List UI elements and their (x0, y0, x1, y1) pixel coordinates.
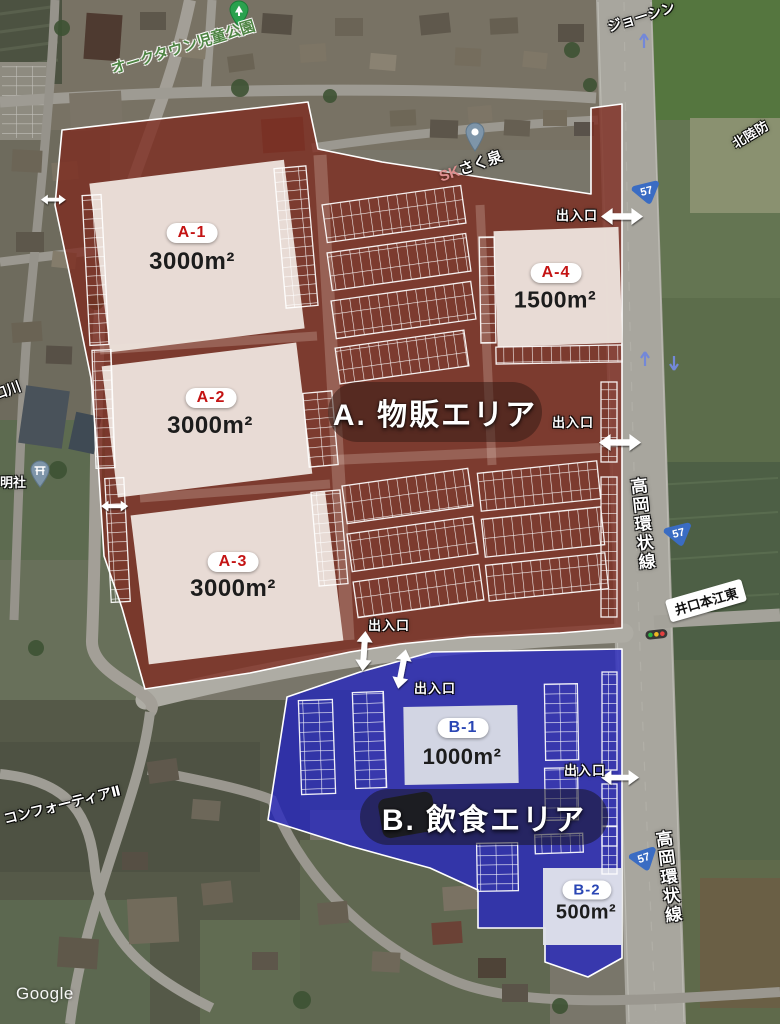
parcel-area-a4: 1500m² (514, 287, 596, 314)
entrance-label-north: 出入口 (556, 209, 598, 223)
shrine-label[interactable]: 明社 (0, 476, 26, 490)
parcel-label-b2: B-2 (562, 881, 611, 900)
zone-a-title: A. 物販エリア (328, 382, 542, 442)
entrance-label-mid-a: 出入口 (368, 619, 410, 633)
parcel-area-a2: 3000m² (167, 412, 253, 440)
parcel-label-a4: A-4 (531, 263, 582, 283)
parcel-label-a3: A-3 (208, 552, 259, 572)
satellite-map[interactable]: 57 57 57 A. 物販エリア B. 飲食エリア A-1 3000m² A-… (0, 0, 780, 1024)
parcel-area-b2: 500m² (556, 902, 616, 925)
parcel-label-a1: A-1 (167, 223, 218, 243)
google-attribution: Google (16, 984, 74, 1004)
zone-b-title: B. 飲食エリア (360, 789, 608, 845)
parcel-area-a1: 3000m² (149, 248, 235, 276)
entrance-label-southeast: 出入口 (564, 764, 606, 778)
parcel-area-b1: 1000m² (423, 744, 502, 770)
entrance-label-east: 出入口 (552, 416, 594, 430)
parcel-label-b1: B-1 (438, 718, 489, 738)
entrance-label-mid-b: 出入口 (414, 682, 456, 696)
parcel-label-a2: A-2 (186, 388, 237, 408)
parcel-area-a3: 3000m² (190, 575, 276, 603)
